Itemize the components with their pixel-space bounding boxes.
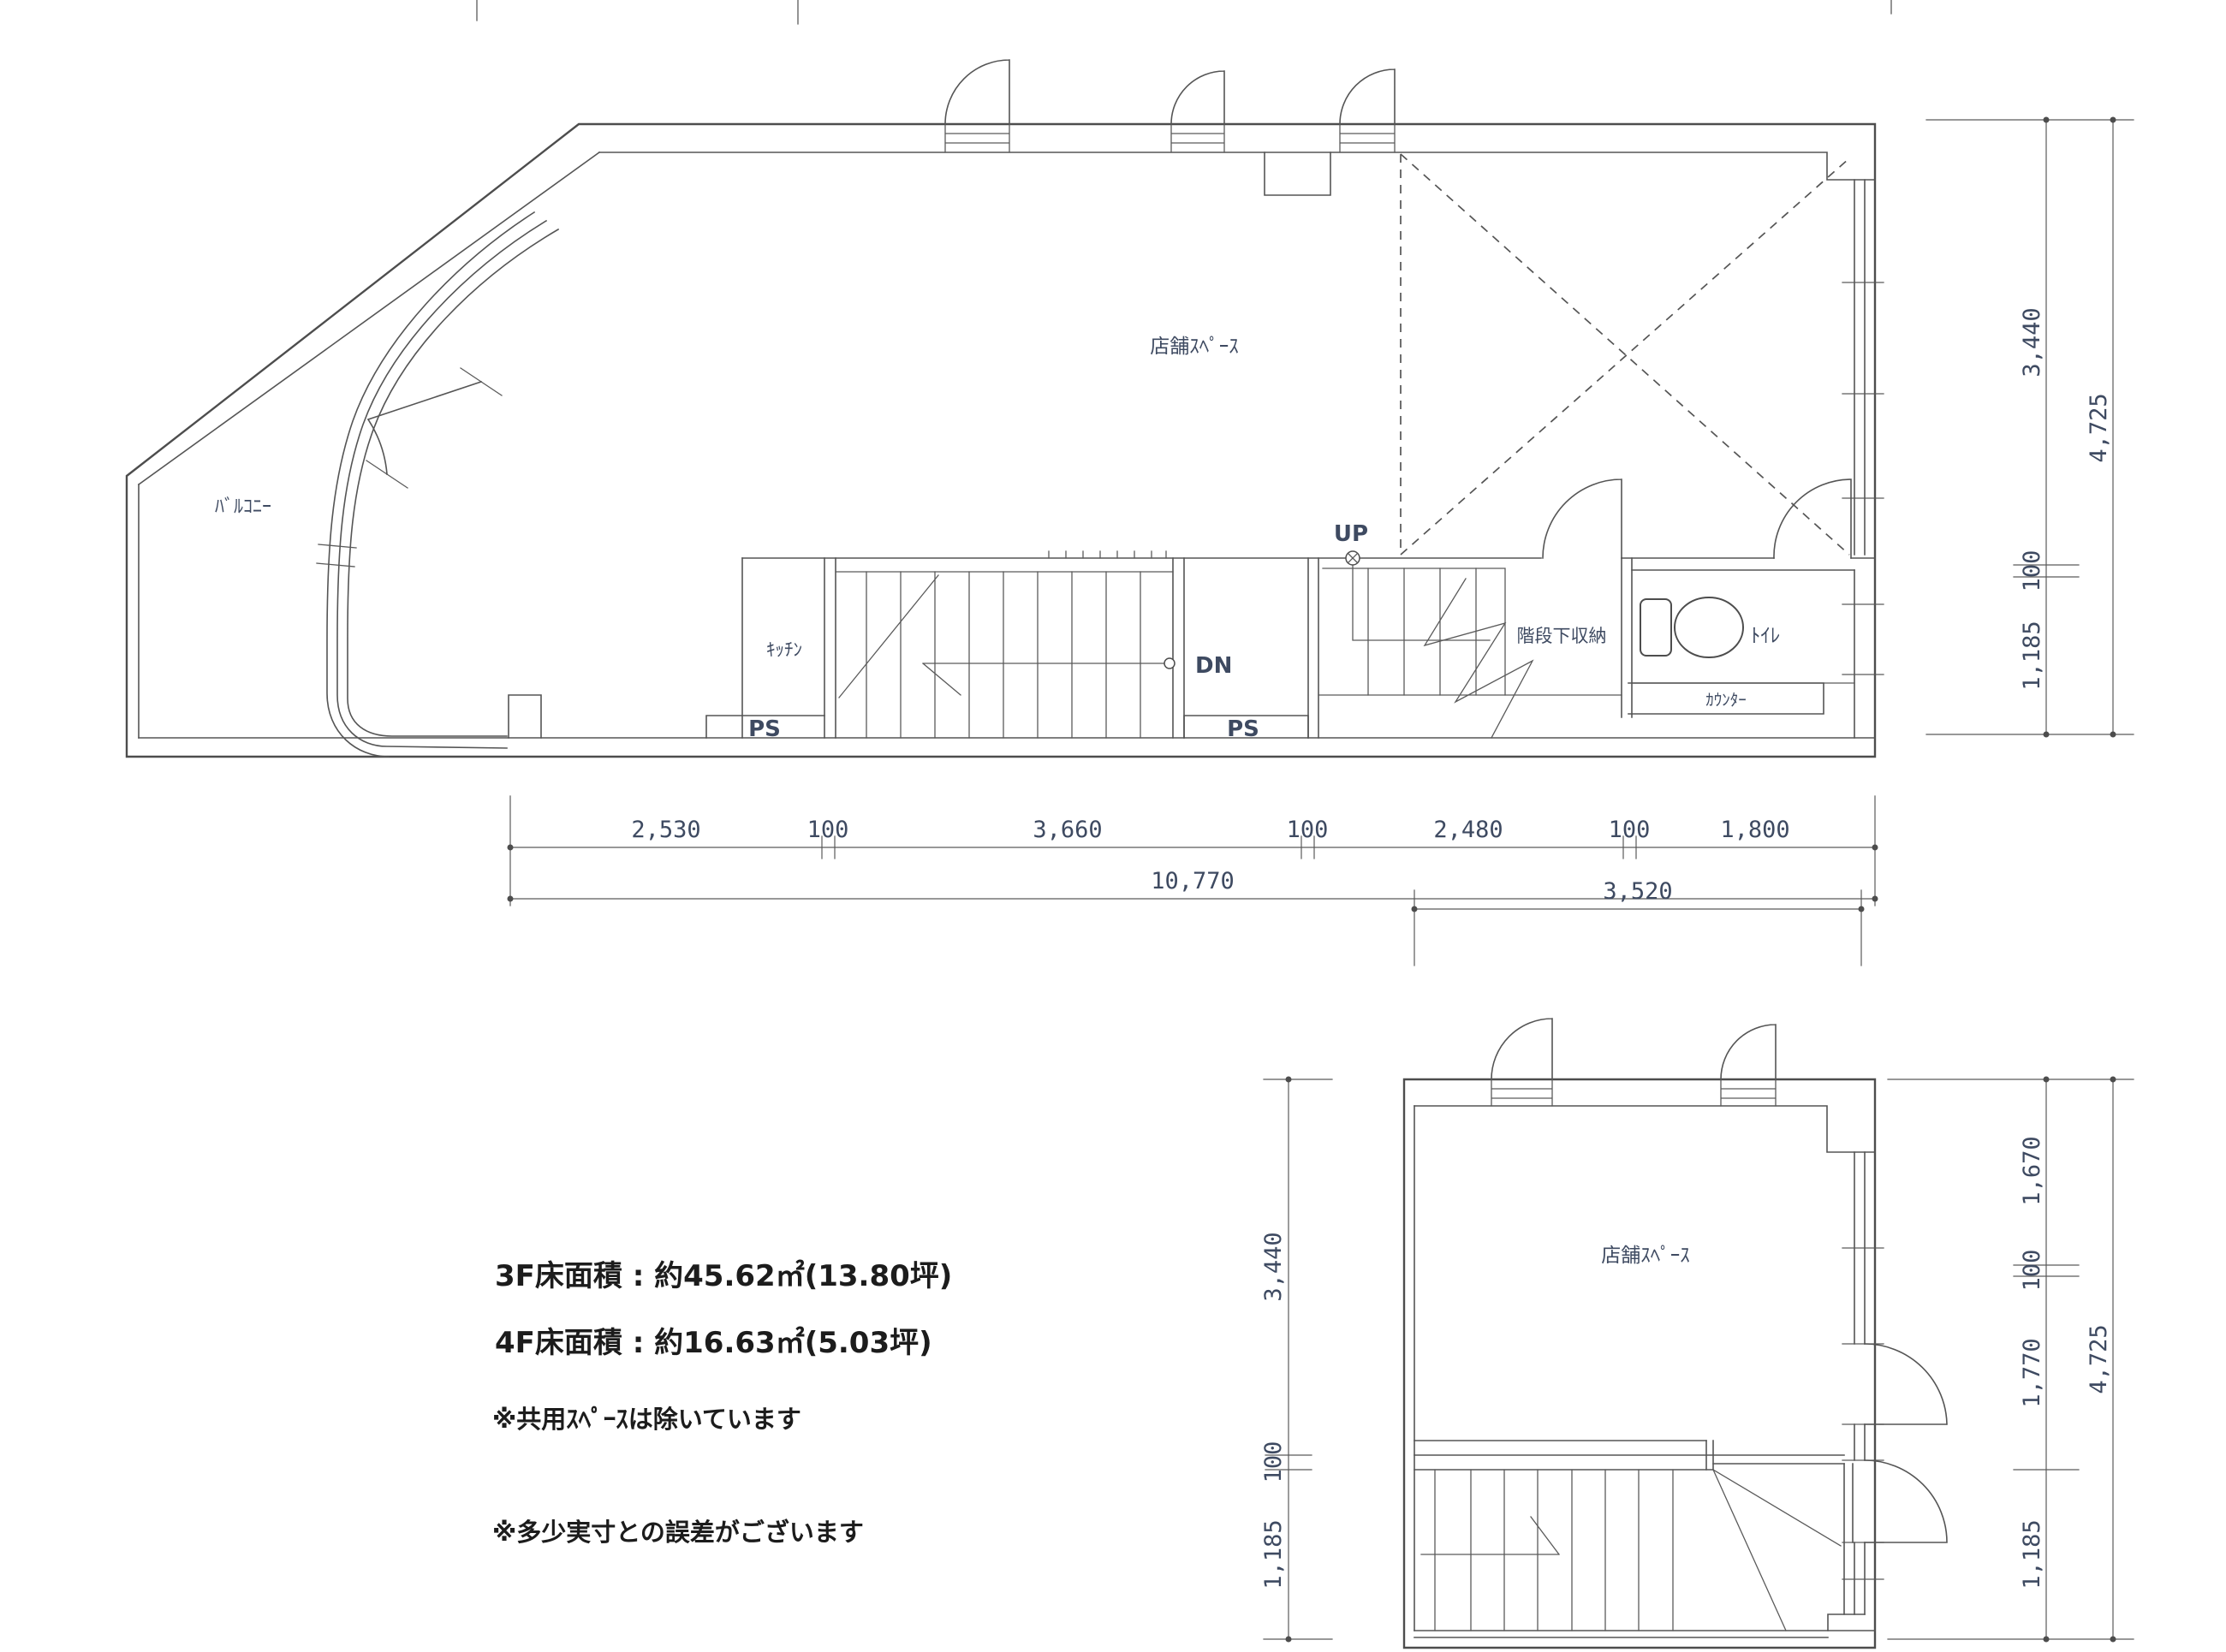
- interior-walls-4f: [1414, 1441, 1865, 1631]
- note-shared-space: ※共用ｽﾍﾟｰｽは除いています: [492, 1405, 801, 1434]
- dim-bottom-3f-5: 100: [1609, 817, 1651, 843]
- room-label-shop-4f: 店舗ｽﾍﾟｰｽ: [1601, 1245, 1690, 1267]
- door-top-1: [945, 60, 1009, 152]
- dim-right-4f-3: 1,185: [2019, 1519, 2045, 1589]
- dim-bottom-3f-total: 10,770: [1151, 868, 1235, 894]
- inner-wall-top-3f: [599, 152, 1875, 180]
- label-ps-right: PS: [1227, 716, 1259, 742]
- door-right-4f-2: [1842, 1460, 1947, 1542]
- inner-wall-right-3f: [1854, 180, 1865, 738]
- dim-right-4f-2: 1,770: [2019, 1338, 2045, 1407]
- inner-wall-diagonal-3f: [139, 152, 599, 484]
- door-top-2: [1171, 71, 1224, 152]
- balcony-door: [366, 368, 502, 488]
- room-label-kitchen: ｷｯﾁﾝ: [766, 639, 802, 660]
- door-top-3: [1340, 69, 1395, 152]
- plan-3f: 店舗ｽﾍﾟｰｽ ﾊﾞﾙｺﾆｰ ｷｯﾁﾝ ﾄｲﾚ 階段下収納 ｶｳﾝﾀｰ PS P…: [127, 0, 1891, 757]
- room-label-balcony: ﾊﾞﾙｺﾆｰ: [215, 496, 271, 518]
- note-area-3f: 3F床面積 : 約45.62㎡(13.80坪): [495, 1259, 952, 1293]
- dim-right-3f-2: 1,185: [2019, 621, 2045, 690]
- balcony-curved-wall: [317, 212, 558, 757]
- extension-line-stubs: [477, 0, 1891, 24]
- dim-left-4f-0: 3,440: [1260, 1232, 1287, 1301]
- dim-right-3f-0: 3,440: [2019, 307, 2045, 377]
- void-cross-dashed: [1401, 154, 1849, 555]
- dim-bottom-3f-3: 100: [1287, 817, 1329, 843]
- label-down: DN: [1195, 653, 1232, 679]
- door-top-4f-1: [1491, 1019, 1552, 1106]
- floorplan-drawing: 店舗ｽﾍﾟｰｽ ﾊﾞﾙｺﾆｰ ｷｯﾁﾝ ﾄｲﾚ 階段下収納 ｶｳﾝﾀｰ PS P…: [0, 0, 2226, 1652]
- dim-right-3f-1: 100: [2019, 550, 2045, 592]
- dim-right-4f-0: 1,670: [2019, 1136, 2045, 1205]
- room-label-shop-3f: 店舗ｽﾍﾟｰｽ: [1150, 336, 1239, 358]
- staircase-up: [1318, 551, 1622, 695]
- understair-storage: [1425, 558, 1632, 738]
- label-up: UP: [1334, 521, 1368, 547]
- dim-right-3f-total: 4,725: [2086, 393, 2112, 462]
- storage-door: [1543, 479, 1622, 558]
- staircase-4f: [1421, 1470, 1841, 1631]
- door-right-4f-1: [1842, 1344, 1947, 1424]
- dimensions-4f: 3,520 3,440 100 1,185 1,670 100 1,770 1,…: [1260, 878, 2134, 1643]
- outer-wall-3f: [127, 124, 1875, 757]
- inner-wall-bottom-4f: [1414, 1631, 1875, 1637]
- dim-left-4f-1: 100: [1260, 1441, 1287, 1483]
- toilet-tank-icon: [1640, 599, 1671, 656]
- floorplan-page: 店舗ｽﾍﾟｰｽ ﾊﾞﾙｺﾆｰ ｷｯﾁﾝ ﾄｲﾚ 階段下収納 ｶｳﾝﾀｰ PS P…: [0, 0, 2226, 1652]
- dim-bottom-3f-2: 3,660: [1033, 817, 1102, 843]
- inner-wall-top-4f: [1414, 1106, 1875, 1152]
- dim-right-4f-total: 4,725: [2086, 1324, 2112, 1394]
- room-label-understair-storage: 階段下収納: [1517, 626, 1607, 646]
- plan-4f: 店舗ｽﾍﾟｰｽ: [1404, 1019, 1947, 1648]
- dim-left-4f-2: 1,185: [1260, 1519, 1287, 1589]
- pillar-box: [509, 695, 541, 738]
- outer-wall-4f: [1404, 1079, 1875, 1648]
- dim-top-4f-total: 3,520: [1603, 878, 1672, 905]
- window-tick-icon-4f: [1842, 1248, 1884, 1579]
- staircase-down: [836, 551, 1184, 738]
- inner-wall-right-4f: [1854, 1152, 1865, 1614]
- dim-bottom-3f-0: 2,530: [631, 817, 700, 843]
- window-tick-icon: [1842, 282, 1884, 674]
- room-label-counter: ｶｳﾝﾀｰ: [1705, 691, 1747, 710]
- note-tolerance: ※多少実寸との誤差がございます: [492, 1518, 864, 1547]
- dim-bottom-3f-4: 2,480: [1433, 817, 1503, 843]
- hall-wall: [1308, 558, 1318, 738]
- room-label-toilet: ﾄｲﾚ: [1751, 625, 1781, 647]
- note-area-4f: 4F床面積 : 約16.63㎡(5.03坪): [495, 1326, 932, 1360]
- area-notes: 3F床面積 : 約45.62㎡(13.80坪) 4F床面積 : 約16.63㎡(…: [492, 1259, 952, 1547]
- dimensions-3f: 3,440 100 1,185 4,725 2,530 100 3,660 10…: [508, 117, 2134, 906]
- door-top-4f-2: [1721, 1025, 1776, 1106]
- dim-bottom-3f-6: 1,800: [1720, 817, 1789, 843]
- wall-notch-3f: [1265, 152, 1330, 195]
- dim-bottom-3f-1: 100: [807, 817, 849, 843]
- toilet-bowl-icon: [1675, 597, 1743, 657]
- dim-right-4f-1: 100: [2019, 1250, 2045, 1292]
- label-ps-left: PS: [748, 716, 781, 742]
